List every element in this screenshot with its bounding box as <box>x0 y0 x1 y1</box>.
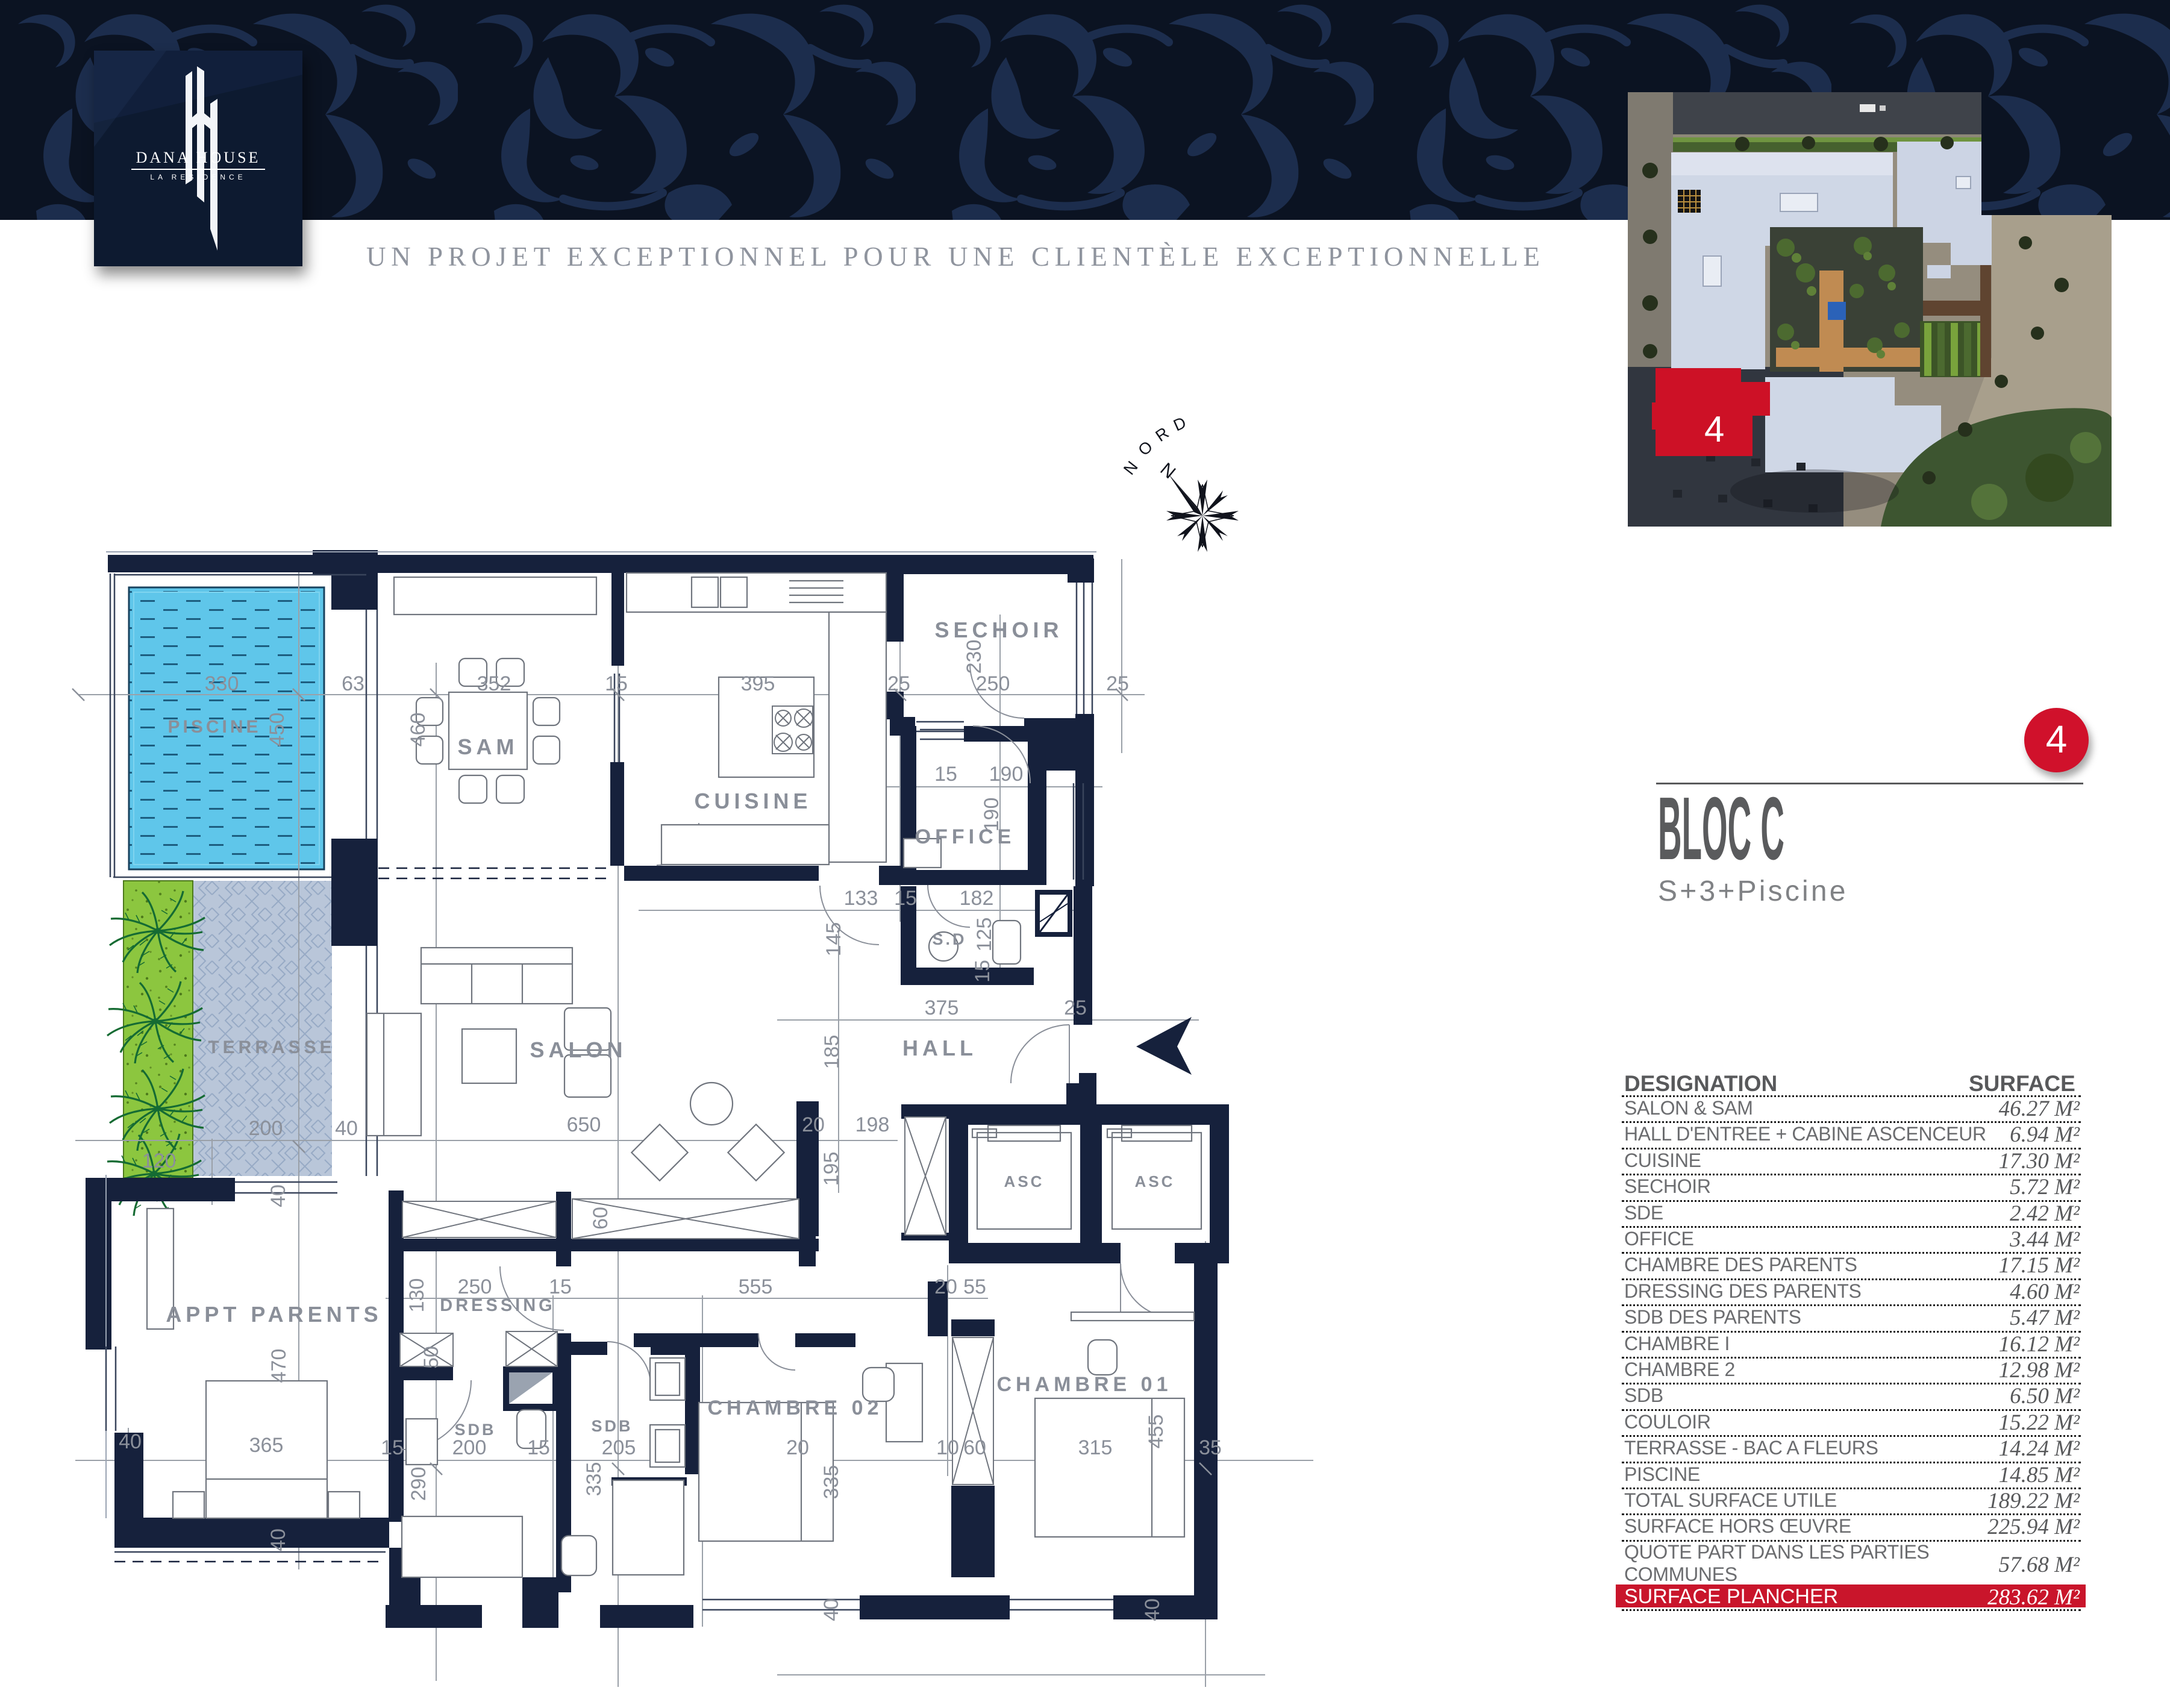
svg-text:190: 190 <box>980 798 1003 832</box>
svg-text:ASC: ASC <box>1004 1172 1045 1190</box>
svg-text:200: 200 <box>452 1436 487 1459</box>
svg-text:SDB: SDB <box>591 1417 633 1435</box>
svg-text:15: 15 <box>894 887 917 910</box>
svg-text:4: 4 <box>1704 409 1724 449</box>
svg-text:15: 15 <box>381 1436 404 1459</box>
svg-text:15: 15 <box>605 672 628 695</box>
svg-text:25: 25 <box>1064 996 1087 1019</box>
svg-text:LA RESIDENCE: LA RESIDENCE <box>150 173 246 181</box>
svg-text:N: N <box>1157 459 1180 483</box>
svg-text:D: D <box>1171 413 1189 434</box>
svg-text:60: 60 <box>589 1207 612 1230</box>
svg-text:460: 460 <box>407 713 430 747</box>
svg-text:250: 250 <box>976 672 1010 695</box>
svg-text:40: 40 <box>119 1430 142 1453</box>
svg-text:DANA HOUSE: DANA HOUSE <box>136 149 261 166</box>
svg-text:55: 55 <box>963 1275 986 1298</box>
svg-text:365: 365 <box>249 1434 284 1457</box>
svg-text:40: 40 <box>820 1598 843 1621</box>
svg-text:SECHOIR: SECHOIR <box>934 618 1063 642</box>
svg-text:395: 395 <box>741 672 775 695</box>
svg-text:15: 15 <box>971 960 994 983</box>
svg-text:ASC: ASC <box>1135 1172 1175 1190</box>
svg-text:130: 130 <box>405 1278 428 1313</box>
svg-text:230: 230 <box>963 640 986 674</box>
svg-text:O: O <box>1134 437 1156 459</box>
svg-text:125: 125 <box>973 918 996 952</box>
svg-text:315: 315 <box>1078 1436 1113 1459</box>
svg-text:185: 185 <box>821 1035 843 1069</box>
svg-text:CHAMBRE 01: CHAMBRE 01 <box>996 1373 1172 1396</box>
svg-text:145: 145 <box>822 922 845 957</box>
svg-text:330: 330 <box>205 672 239 695</box>
svg-text:HALL: HALL <box>902 1036 977 1060</box>
svg-text:375: 375 <box>925 996 959 1019</box>
svg-text:352: 352 <box>477 672 511 695</box>
svg-text:40: 40 <box>1141 1598 1164 1621</box>
svg-text:TERRASSE: TERRASSE <box>208 1037 335 1057</box>
svg-text:650: 650 <box>567 1113 601 1136</box>
svg-text:15: 15 <box>549 1275 572 1298</box>
svg-text:470: 470 <box>267 1349 290 1383</box>
svg-text:SALON: SALON <box>530 1037 627 1062</box>
svg-text:455: 455 <box>1145 1415 1168 1449</box>
svg-text:N: N <box>1120 458 1142 478</box>
svg-text:195: 195 <box>820 1152 843 1186</box>
svg-text:CUISINE: CUISINE <box>694 789 811 813</box>
svg-text:190: 190 <box>989 763 1024 786</box>
svg-text:182: 182 <box>960 887 994 910</box>
svg-text:450: 450 <box>266 713 289 747</box>
svg-text:PISCINE: PISCINE <box>167 717 261 737</box>
svg-text:40: 40 <box>335 1117 358 1140</box>
svg-text:133: 133 <box>844 887 878 910</box>
svg-text:R: R <box>1152 424 1172 445</box>
svg-text:APPT PARENTS: APPT PARENTS <box>166 1302 382 1327</box>
svg-text:20: 20 <box>802 1113 825 1136</box>
svg-text:25: 25 <box>887 672 910 695</box>
svg-text:200: 200 <box>249 1117 283 1140</box>
svg-text:335: 335 <box>820 1465 843 1500</box>
svg-text:20: 20 <box>934 1275 957 1298</box>
svg-text:25: 25 <box>1106 672 1129 695</box>
svg-text:290: 290 <box>407 1467 430 1501</box>
svg-text:60: 60 <box>963 1436 986 1459</box>
svg-text:35: 35 <box>1199 1436 1222 1459</box>
svg-text:555: 555 <box>739 1275 773 1298</box>
svg-text:SDB: SDB <box>454 1421 496 1439</box>
svg-text:40: 40 <box>267 1528 290 1551</box>
svg-text:335: 335 <box>583 1462 605 1497</box>
svg-text:250: 250 <box>458 1275 492 1298</box>
svg-text:63: 63 <box>342 672 364 695</box>
svg-text:120: 120 <box>142 1150 177 1172</box>
svg-text:40: 40 <box>267 1184 290 1207</box>
svg-text:20: 20 <box>786 1436 809 1459</box>
svg-text:DRESSING: DRESSING <box>440 1296 555 1315</box>
svg-text:15: 15 <box>934 763 957 786</box>
svg-text:198: 198 <box>855 1113 890 1136</box>
svg-text:SAM: SAM <box>458 734 519 759</box>
svg-text:205: 205 <box>602 1436 636 1459</box>
svg-text:50: 50 <box>420 1346 443 1369</box>
svg-text:S.D: S.D <box>932 930 966 948</box>
svg-text:10: 10 <box>936 1436 959 1459</box>
svg-text:CHAMBRE 02: CHAMBRE 02 <box>707 1397 883 1419</box>
svg-text:OFFICE: OFFICE <box>915 825 1016 848</box>
svg-text:15: 15 <box>527 1436 550 1459</box>
